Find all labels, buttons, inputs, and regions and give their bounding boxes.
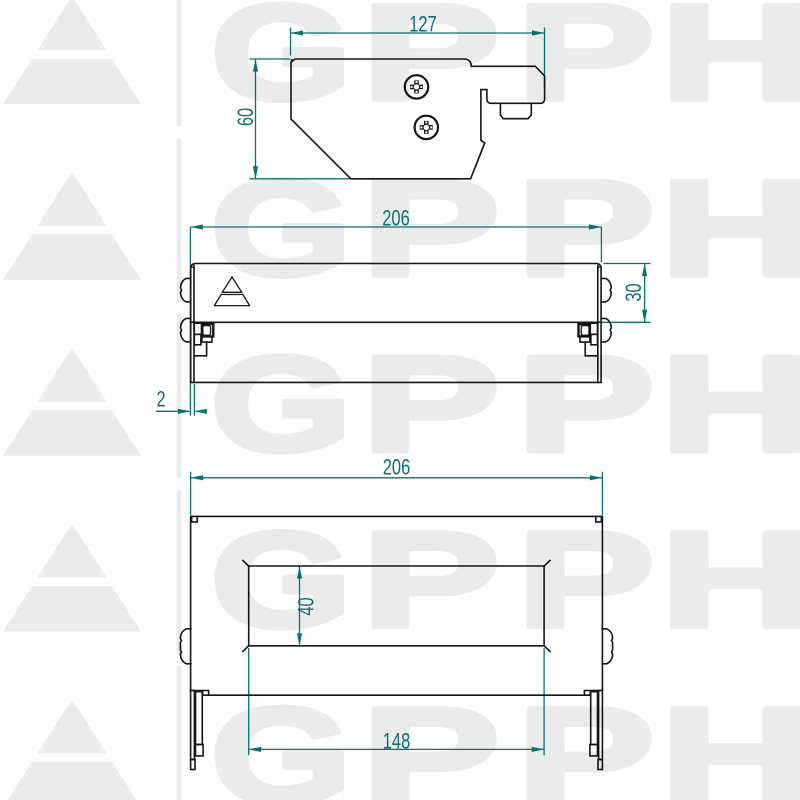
svg-text:206: 206 — [383, 455, 410, 480]
svg-text:P: P — [517, 680, 655, 800]
svg-text:148: 148 — [383, 729, 410, 754]
svg-text:30: 30 — [622, 283, 647, 301]
svg-text:H: H — [660, 153, 800, 304]
svg-text:127: 127 — [409, 12, 436, 37]
svg-text:G: G — [211, 152, 352, 304]
svg-text:H: H — [660, 680, 800, 800]
svg-text:H: H — [660, 329, 800, 480]
svg-text:G: G — [211, 328, 352, 480]
svg-text:G: G — [211, 679, 352, 800]
svg-text:P: P — [362, 504, 500, 656]
svg-text:206: 206 — [382, 206, 409, 231]
svg-text:G: G — [211, 503, 352, 655]
svg-text:P: P — [517, 504, 655, 656]
svg-text:P: P — [517, 153, 655, 305]
svg-text:40: 40 — [294, 597, 319, 615]
svg-text:2: 2 — [156, 387, 165, 412]
svg-text:H: H — [660, 504, 800, 655]
svg-text:G: G — [211, 0, 352, 128]
svg-text:P: P — [517, 0, 655, 129]
svg-text:60: 60 — [234, 108, 259, 126]
svg-text:H: H — [660, 0, 800, 128]
